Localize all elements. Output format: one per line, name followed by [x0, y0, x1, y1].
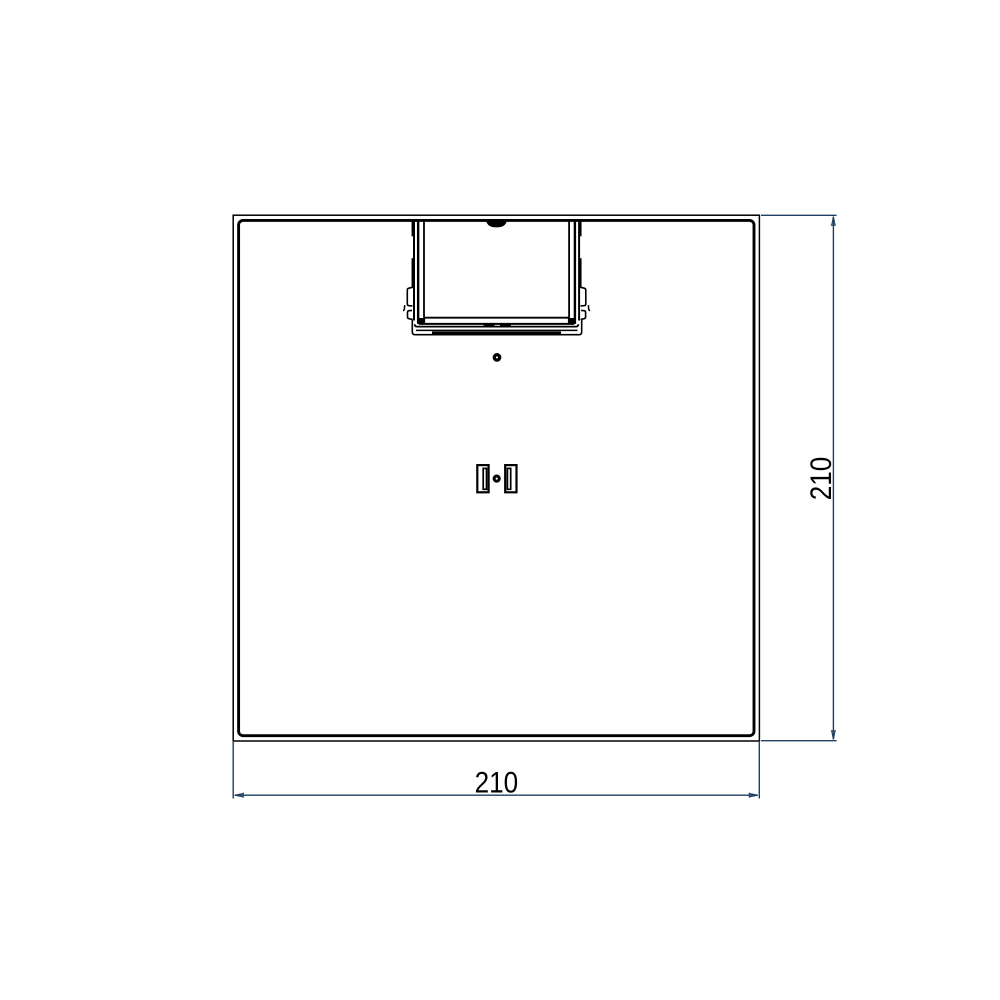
svg-text:210: 210	[805, 457, 838, 501]
svg-text:210: 210	[475, 767, 519, 800]
